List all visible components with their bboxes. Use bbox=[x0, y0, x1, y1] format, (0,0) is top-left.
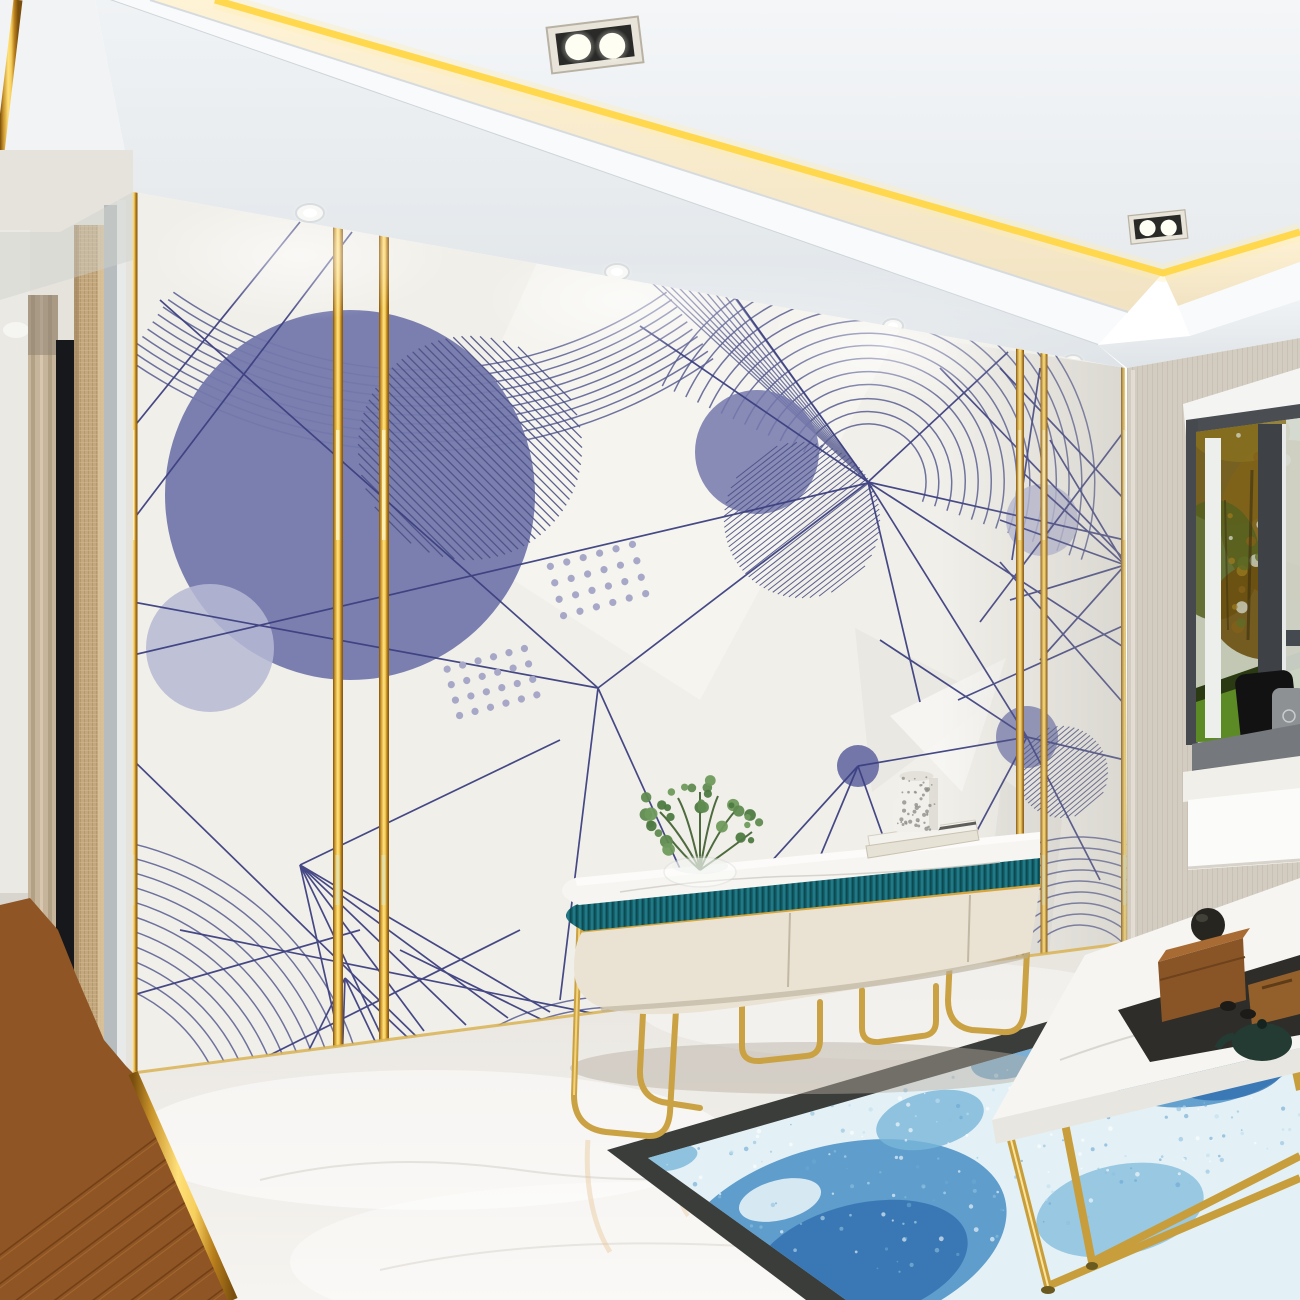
under-window-panel bbox=[1188, 788, 1300, 870]
table-foot bbox=[1041, 1286, 1055, 1294]
sash-bar-horizontal bbox=[1284, 630, 1300, 646]
tea-cup bbox=[1220, 1001, 1236, 1011]
living-room-render bbox=[0, 0, 1300, 1300]
doorway-dark-opening bbox=[56, 340, 76, 995]
twin-spotlight-fixture-small bbox=[1128, 210, 1188, 244]
tea-cup bbox=[1240, 1009, 1256, 1019]
fabric-panel-column bbox=[74, 225, 104, 1073]
room-scene bbox=[0, 0, 1300, 1300]
terrazzo-jar bbox=[893, 771, 940, 832]
table-foot bbox=[1086, 1262, 1098, 1270]
window-jamb-white bbox=[1205, 438, 1221, 738]
hallway-downlight bbox=[3, 322, 29, 338]
twin-spotlight-fixture bbox=[547, 17, 644, 74]
teapot-knob bbox=[1257, 1019, 1267, 1029]
white-trim-strip bbox=[117, 200, 126, 1068]
gray-trim-strip bbox=[104, 205, 117, 1067]
